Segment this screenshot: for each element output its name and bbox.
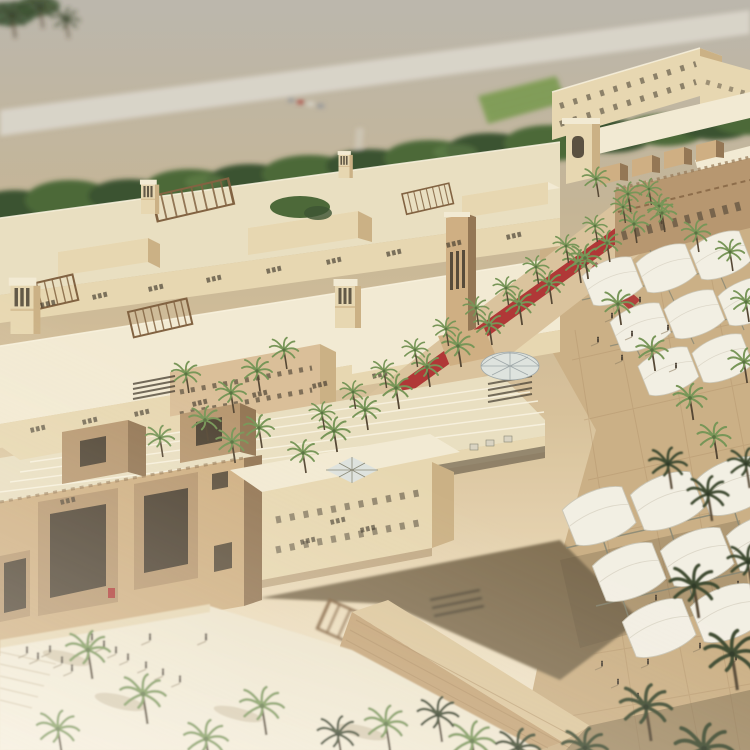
tower-slot (450, 252, 453, 290)
wind-tower (140, 180, 159, 214)
portal-opening (4, 558, 26, 613)
campanile-tower (562, 118, 600, 184)
tower-slot (456, 251, 459, 289)
souq-complex-rendering (0, 0, 750, 750)
portal-opening (144, 488, 188, 573)
aerial-rendering-stage (0, 0, 750, 750)
wind-tower (338, 151, 353, 178)
roof-garden (304, 206, 332, 220)
side-wall (432, 462, 454, 548)
car (288, 98, 294, 102)
car (297, 100, 304, 104)
red-banner (108, 588, 115, 598)
square-opening (212, 471, 228, 490)
roof-cube-side (128, 420, 146, 477)
wind-tower (334, 279, 362, 328)
wind-tower (9, 278, 41, 334)
tower-arch (572, 136, 584, 158)
square-opening (214, 542, 232, 572)
portal-opening (50, 504, 106, 598)
car (307, 102, 314, 106)
tower-cap (444, 212, 470, 217)
cube-opening (80, 436, 106, 467)
tower-slot (462, 250, 465, 288)
tower-cap (562, 118, 600, 124)
glass-dome (481, 352, 539, 380)
car (317, 104, 324, 108)
